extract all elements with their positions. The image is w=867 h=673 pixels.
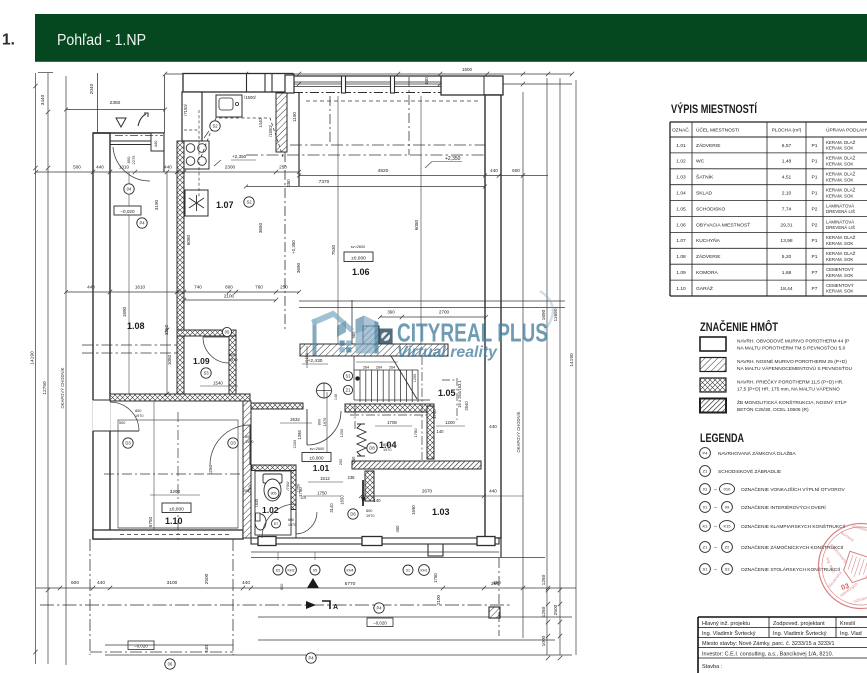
svg-text:1750: 1750 — [433, 573, 438, 583]
svg-text:–: – — [714, 567, 717, 573]
svg-text:1190: 1190 — [292, 112, 297, 122]
svg-text:Ing. Vladimír Švrtecký: Ing. Vladimír Švrtecký — [773, 630, 827, 637]
svg-text:2532: 2532 — [290, 417, 300, 422]
svg-text:2100: 2100 — [224, 294, 235, 299]
svg-text:360: 360 — [387, 310, 395, 315]
svg-text:1.03: 1.03 — [676, 175, 686, 181]
svg-text:KERAM. SOK: KERAM. SOK — [826, 257, 853, 262]
svg-text:1200: 1200 — [339, 428, 344, 437]
svg-text:905: 905 — [271, 491, 277, 495]
svg-text:1.06: 1.06 — [352, 267, 370, 277]
svg-text:KERAM. SOK: KERAM. SOK — [826, 273, 853, 278]
svg-text:OZNAČENIE VONKAJŠÍCH VÝPLNÍ OT: OZNAČENIE VONKAJŠÍCH VÝPLNÍ OTVOROV — [741, 486, 845, 493]
svg-text:1.08: 1.08 — [676, 254, 686, 260]
svg-text:OZNAČ.: OZNAČ. — [672, 127, 690, 134]
svg-text:OZNAČENIE INTERIÉROVÝCH DVERÍ: OZNAČENIE INTERIÉROVÝCH DVERÍ — [741, 504, 826, 511]
svg-text:VÝPIS MIESTNOSTÍ: VÝPIS MIESTNOSTÍ — [671, 103, 758, 116]
svg-text:04: 04 — [127, 187, 132, 192]
svg-text:KERAM. SOK: KERAM. SOK — [826, 193, 853, 198]
svg-text:2350: 2350 — [110, 100, 121, 106]
svg-text:3250: 3250 — [164, 324, 169, 335]
svg-text:2540: 2540 — [464, 401, 469, 411]
svg-text:3290: 3290 — [170, 489, 181, 495]
svg-text:1200: 1200 — [445, 420, 455, 425]
svg-text:800: 800 — [225, 285, 233, 290]
svg-text:P7: P7 — [812, 286, 818, 292]
svg-text:P1: P1 — [812, 190, 818, 196]
svg-text:140: 140 — [334, 394, 338, 400]
svg-text:sv=2600: sv=2600 — [351, 245, 365, 249]
svg-text:1500: 1500 — [462, 67, 473, 72]
svg-text:1635: 1635 — [255, 499, 259, 507]
svg-text:16 x 264/163,1: 16 x 264/163,1 — [457, 379, 462, 407]
svg-text:CITYREAL PLUS: CITYREAL PLUS — [397, 318, 548, 348]
svg-text:–: – — [714, 545, 717, 551]
svg-text:1.02: 1.02 — [676, 159, 686, 165]
svg-text:P4: P4 — [139, 221, 145, 226]
svg-text:S3: S3 — [725, 566, 731, 571]
svg-text:CEMENTOVÝ: CEMENTOVÝ — [826, 267, 854, 272]
svg-text:800: 800 — [135, 409, 141, 413]
svg-text:/1500/: /1500/ — [268, 124, 273, 136]
svg-text:1970: 1970 — [135, 414, 143, 418]
svg-text:±0,000: ±0,000 — [309, 456, 323, 461]
svg-text:1690: 1690 — [411, 505, 416, 515]
svg-text:±0,000: ±0,000 — [169, 507, 184, 513]
svg-text:P1: P1 — [812, 238, 818, 244]
svg-text:264: 264 — [389, 366, 395, 370]
svg-text:Z1: Z1 — [703, 544, 708, 549]
svg-text:WC: WC — [696, 159, 705, 165]
svg-text:29,31: 29,31 — [780, 222, 793, 228]
svg-text:05: 05 — [313, 568, 317, 572]
svg-text:Hlavný inž. projektu: Hlavný inž. projektu — [702, 621, 750, 627]
svg-text:–0,020: –0,020 — [373, 621, 387, 626]
svg-text:P7: P7 — [812, 270, 818, 276]
svg-text:BETÓN C25/30, OCEL 10505 (R): BETÓN C25/30, OCEL 10505 (R) — [737, 406, 809, 413]
svg-text:/2150: /2150 — [304, 352, 309, 363]
svg-text:1,48: 1,48 — [782, 159, 792, 165]
svg-text:D8: D8 — [369, 446, 375, 451]
svg-text:KERAM. SOK: KERAM. SOK — [826, 177, 853, 182]
svg-text:17,5 (P+D) HR. 175 mm, NA MALT: 17,5 (P+D) HR. 175 mm, NA MALTU VÁPENNO — [737, 386, 840, 393]
svg-text:SKLAD: SKLAD — [696, 190, 713, 196]
svg-text:Ing. Vladimír Švrtecký: Ing. Vladimír Švrtecký — [702, 630, 756, 637]
svg-text:S2: S2 — [246, 200, 252, 205]
svg-text:ZNAČENIE HMÔT: ZNAČENIE HMÔT — [700, 321, 778, 334]
svg-text:800: 800 — [280, 584, 284, 590]
svg-text:+2,350: +2,350 — [291, 240, 296, 254]
svg-text:440: 440 — [490, 168, 498, 173]
svg-text:800: 800 — [366, 509, 372, 513]
svg-text:+2,350: +2,350 — [445, 156, 461, 162]
svg-text:KERAM. DLAŽ: KERAM. DLAŽ — [826, 251, 856, 256]
svg-text:KERAM. SOK: KERAM. SOK — [826, 289, 853, 294]
svg-text:1.07: 1.07 — [676, 238, 686, 244]
svg-text:14190: 14190 — [569, 353, 575, 367]
svg-text:1.05: 1.05 — [438, 388, 456, 398]
svg-text:3690: 3690 — [296, 262, 301, 273]
svg-text:2100: 2100 — [436, 594, 441, 605]
svg-text:/7150/: /7150/ — [183, 103, 188, 115]
svg-text:ÚPRAVA PODLAHY: ÚPRAVA PODLAHY — [826, 127, 867, 134]
svg-text:250: 250 — [279, 165, 287, 170]
svg-text:OKAPOVÝ CHODNÍK: OKAPOVÝ CHODNÍK — [60, 367, 65, 408]
svg-text:980: 980 — [351, 331, 356, 338]
svg-text:440: 440 — [164, 165, 172, 170]
svg-text:600: 600 — [71, 580, 79, 586]
svg-text:KERAM. SOK: KERAM. SOK — [826, 161, 853, 166]
svg-text:6080: 6080 — [414, 219, 419, 230]
svg-text:1970: 1970 — [229, 358, 237, 362]
svg-text:Investor: C.E.I. consulting, a: Investor: C.E.I. consulting, a.s., Bancí… — [702, 652, 834, 658]
svg-text:1512: 1512 — [320, 476, 330, 481]
svg-text:7,74: 7,74 — [782, 206, 792, 212]
svg-text:6,57: 6,57 — [782, 143, 792, 149]
svg-text:12750: 12750 — [42, 381, 48, 395]
svg-text:1760: 1760 — [432, 409, 437, 419]
svg-text:1,68: 1,68 — [782, 270, 792, 276]
svg-text:250: 250 — [280, 285, 288, 290]
svg-text:LAMINÁTOVÁ: LAMINÁTOVÁ — [826, 203, 854, 208]
svg-text:Z1: Z1 — [346, 388, 352, 393]
svg-text:440: 440 — [489, 489, 497, 494]
svg-text:2100: 2100 — [292, 439, 297, 448]
svg-text:NAVRH. PRIEČKY POROTHERM 11,5: NAVRH. PRIEČKY POROTHERM 11,5 (P+D) HR. — [737, 379, 843, 386]
svg-text:1780: 1780 — [413, 428, 418, 438]
svg-text:1.01: 1.01 — [676, 143, 686, 149]
svg-text:S2: S2 — [212, 124, 218, 129]
svg-text:D3: D3 — [230, 441, 236, 446]
svg-text:4,51: 4,51 — [782, 175, 792, 181]
svg-text:1.09: 1.09 — [193, 356, 210, 366]
svg-text:800: 800 — [383, 443, 389, 447]
svg-text:NAVRH. NOSNÉ MURIVO POROTHERM: NAVRH. NOSNÉ MURIVO POROTHERM 25 (P+D) — [737, 358, 847, 365]
svg-text:1.09: 1.09 — [676, 270, 686, 276]
svg-text:Pohľad - 1.NP: Pohľad - 1.NP — [57, 32, 146, 49]
svg-text:KH2: KH2 — [288, 568, 295, 572]
svg-text:P1: P1 — [812, 159, 818, 165]
svg-text:7370: 7370 — [319, 179, 330, 185]
svg-text:/1500/: /1500/ — [244, 95, 256, 100]
svg-text:A: A — [333, 604, 338, 611]
svg-text:1250: 1250 — [541, 606, 547, 617]
svg-text:1750: 1750 — [317, 491, 327, 496]
svg-text:440: 440 — [87, 285, 95, 290]
svg-text:09: 09 — [725, 504, 730, 509]
svg-text:SCHODISKO: SCHODISKO — [696, 206, 726, 212]
svg-text:KH4: KH4 — [347, 568, 354, 572]
svg-text:1.10: 1.10 — [676, 286, 686, 292]
svg-text:250: 250 — [493, 580, 501, 585]
svg-text:250: 250 — [338, 458, 343, 465]
svg-text:01: 01 — [406, 568, 410, 572]
svg-text:440: 440 — [424, 77, 429, 85]
svg-text:13,98: 13,98 — [780, 238, 793, 244]
svg-text:1050: 1050 — [167, 354, 172, 365]
svg-text:18,44: 18,44 — [780, 286, 793, 292]
svg-text:7530: 7530 — [331, 244, 336, 255]
svg-text:2275: 2275 — [131, 155, 136, 165]
svg-text:1.10: 1.10 — [165, 516, 183, 526]
svg-text:sv=2600: sv=2600 — [310, 447, 324, 451]
svg-text:D6: D6 — [350, 512, 356, 517]
svg-text:600: 600 — [288, 518, 294, 522]
svg-text:Kreslil: Kreslil — [840, 621, 855, 627]
svg-text:3190: 3190 — [154, 199, 159, 210]
svg-text:115: 115 — [300, 496, 306, 500]
svg-text:1440: 1440 — [258, 118, 263, 128]
svg-text:KUCHYŇA: KUCHYŇA — [696, 237, 721, 244]
svg-text:ZÁDVERIE: ZÁDVERIE — [696, 253, 721, 260]
svg-text:3650: 3650 — [258, 222, 263, 233]
svg-text:01: 01 — [703, 504, 708, 509]
svg-text:/700/: /700/ — [285, 481, 290, 491]
svg-text:S1: S1 — [345, 374, 351, 379]
svg-text:500: 500 — [119, 421, 125, 425]
svg-text:–0,020: –0,020 — [120, 209, 134, 214]
svg-text:KERAM. SOK: KERAM. SOK — [826, 146, 853, 151]
svg-text:–: – — [714, 505, 717, 511]
svg-text:S1: S1 — [703, 566, 709, 571]
svg-text:D7: D7 — [274, 522, 279, 526]
svg-text:PLOCHA (m²): PLOCHA (m²) — [772, 128, 802, 134]
svg-text:264: 264 — [363, 366, 369, 370]
svg-text:3250: 3250 — [208, 464, 213, 475]
svg-text:800: 800 — [245, 435, 251, 439]
svg-text:LAMINÁTOVÁ: LAMINÁTOVÁ — [826, 219, 854, 224]
svg-text:1.08: 1.08 — [127, 321, 145, 331]
svg-text:450: 450 — [395, 525, 400, 533]
svg-text:CEMENTOVÝ: CEMENTOVÝ — [826, 283, 854, 288]
svg-text:1650: 1650 — [340, 495, 345, 505]
svg-text:440: 440 — [242, 580, 250, 586]
svg-text:SCHODISKOVÉ ZÁBRADLIE: SCHODISKOVÉ ZÁBRADLIE — [718, 468, 781, 475]
svg-text:440: 440 — [153, 140, 158, 147]
svg-text:250: 250 — [351, 456, 356, 464]
svg-text:Z2: Z2 — [725, 544, 730, 549]
svg-text:2700: 2700 — [439, 310, 450, 315]
svg-text:2500: 2500 — [204, 573, 210, 584]
svg-text:Stavba :: Stavba : — [702, 664, 723, 670]
svg-text:P1: P1 — [812, 175, 818, 181]
svg-text:760: 760 — [255, 285, 263, 290]
svg-text:264: 264 — [376, 366, 382, 370]
svg-text:1.05: 1.05 — [676, 206, 686, 212]
svg-text:2040: 2040 — [89, 83, 95, 94]
svg-text:5770: 5770 — [345, 581, 356, 587]
svg-text:1.01: 1.01 — [313, 463, 330, 473]
svg-text:250: 250 — [286, 179, 291, 187]
svg-text:1970: 1970 — [245, 440, 253, 444]
svg-text:ŠATNÍK: ŠATNÍK — [696, 174, 714, 181]
svg-text:5750: 5750 — [148, 516, 153, 527]
svg-text:1970: 1970 — [322, 417, 327, 426]
svg-text:14190: 14190 — [30, 351, 36, 365]
svg-text:1890: 1890 — [122, 306, 127, 317]
svg-text:S3: S3 — [203, 371, 209, 376]
svg-text:1540: 1540 — [213, 381, 223, 386]
svg-text:Virtual reality: Virtual reality — [397, 344, 498, 361]
svg-text:2,10: 2,10 — [782, 190, 792, 196]
svg-text:600: 600 — [512, 168, 520, 173]
svg-text:500: 500 — [73, 165, 81, 170]
svg-text:010: 010 — [724, 486, 731, 491]
svg-text:Zodpoved. projektant: Zodpoved. projektant — [773, 621, 825, 627]
svg-text:1.07: 1.07 — [216, 200, 234, 210]
svg-text:ZÁDVERIE: ZÁDVERIE — [696, 142, 721, 149]
svg-text:KH1: KH1 — [421, 568, 428, 572]
svg-text:1970: 1970 — [383, 448, 391, 452]
svg-text:K1: K1 — [703, 523, 709, 528]
svg-text:KERAM. DLAŽ: KERAM. DLAŽ — [826, 235, 856, 240]
svg-text:3440: 3440 — [40, 94, 46, 105]
svg-text:KERAM. DLAŽ: KERAM. DLAŽ — [826, 172, 856, 177]
svg-text:1750: 1750 — [297, 484, 301, 492]
svg-text:140: 140 — [437, 429, 445, 434]
svg-text:LEGENDA: LEGENDA — [700, 433, 744, 445]
svg-text:OKAPOVÝ CHODNÍK: OKAPOVÝ CHODNÍK — [516, 411, 521, 452]
svg-text:P1: P1 — [812, 143, 818, 149]
svg-text:+2,350: +2,350 — [232, 154, 247, 159]
svg-text:DREVENÁ LIŠ: DREVENÁ LIŠ — [826, 225, 855, 230]
svg-text:1970: 1970 — [288, 523, 296, 527]
svg-text:Ing. Vlad: Ing. Vlad — [840, 631, 862, 637]
svg-text:1708: 1708 — [387, 420, 397, 425]
svg-text:Z1: Z1 — [703, 468, 708, 473]
svg-text:KERAM. SOK: KERAM. SOK — [826, 241, 853, 246]
svg-text:1.03: 1.03 — [432, 507, 450, 517]
svg-text:440: 440 — [204, 645, 209, 653]
svg-text:K15: K15 — [723, 523, 731, 528]
svg-text:P2: P2 — [812, 222, 818, 228]
svg-text:KOMORA: KOMORA — [696, 270, 718, 276]
svg-text:±0,000: ±0,000 — [351, 256, 366, 262]
svg-text:2300: 2300 — [225, 165, 236, 170]
svg-text:1.: 1. — [2, 32, 15, 49]
svg-text:KERAM. DLAŽ: KERAM. DLAŽ — [826, 187, 856, 192]
svg-text:440: 440 — [489, 424, 497, 429]
svg-text:P4: P4 — [308, 656, 314, 661]
svg-text:6080: 6080 — [186, 234, 191, 245]
svg-text:2670: 2670 — [422, 489, 433, 494]
svg-text:P4: P4 — [703, 450, 709, 455]
svg-text:1.06: 1.06 — [676, 222, 686, 228]
svg-text:5,20: 5,20 — [782, 254, 792, 260]
svg-text:3140: 3140 — [329, 503, 334, 513]
svg-text:250: 250 — [243, 489, 249, 493]
svg-text:3100: 3100 — [167, 580, 178, 586]
svg-text:440: 440 — [96, 165, 104, 170]
svg-text:06: 06 — [168, 662, 173, 667]
svg-text:440: 440 — [97, 580, 105, 586]
svg-text:600: 600 — [229, 353, 235, 357]
svg-text:D2: D2 — [276, 568, 281, 572]
svg-text:1970: 1970 — [366, 514, 374, 518]
svg-text:740: 740 — [194, 285, 202, 290]
svg-text:ÚČEL MIESTNOSTI: ÚČEL MIESTNOSTI — [696, 127, 739, 134]
svg-text:1610: 1610 — [135, 285, 146, 290]
svg-text:01: 01 — [703, 486, 708, 491]
svg-text:OZNAČENIE STOLÁRSKYCH KONŠTRUK: OZNAČENIE STOLÁRSKYCH KONŠTRUKCIÍ — [741, 566, 841, 573]
svg-text:Miesto stavby: Nové Zámky, par: Miesto stavby: Nové Zámky, parc. č. 3233… — [702, 641, 835, 647]
svg-text:05: 05 — [225, 330, 230, 335]
svg-text:+2,430: +2,430 — [308, 358, 323, 364]
svg-text:P1: P1 — [812, 254, 818, 260]
svg-text:1250: 1250 — [541, 574, 547, 585]
svg-text:–: – — [714, 487, 717, 493]
svg-text:NAVRH. OBVODOVÉ MURIVO POROTHE: NAVRH. OBVODOVÉ MURIVO POROTHERM 44 (P — [737, 338, 849, 345]
svg-text:800: 800 — [317, 418, 322, 425]
svg-text:P2: P2 — [812, 206, 818, 212]
svg-text:1310: 1310 — [119, 165, 130, 170]
svg-text:140: 140 — [374, 498, 382, 503]
svg-text:KERAM. DLAŽ: KERAM. DLAŽ — [826, 156, 856, 161]
svg-text:P4: P4 — [376, 606, 382, 611]
svg-text:1398: 1398 — [297, 430, 302, 440]
svg-text:238: 238 — [348, 475, 356, 480]
svg-text:4820: 4820 — [378, 168, 389, 174]
svg-text:1000: 1000 — [541, 635, 547, 646]
svg-text:D3: D3 — [125, 441, 131, 446]
svg-text:1.04: 1.04 — [676, 190, 686, 196]
svg-text:DREVENÁ LIŠ: DREVENÁ LIŠ — [826, 209, 855, 214]
svg-text:1200: 1200 — [413, 374, 417, 382]
svg-text:–: – — [714, 524, 717, 530]
svg-text:KERAM. DLAŽ: KERAM. DLAŽ — [826, 140, 856, 145]
svg-text:OZNAČENIE KLAMPIARSKYCH KONŠTR: OZNAČENIE KLAMPIARSKYCH KONŠTRUKCIÍ — [741, 523, 846, 530]
svg-text:–0,020: –0,020 — [134, 644, 148, 649]
